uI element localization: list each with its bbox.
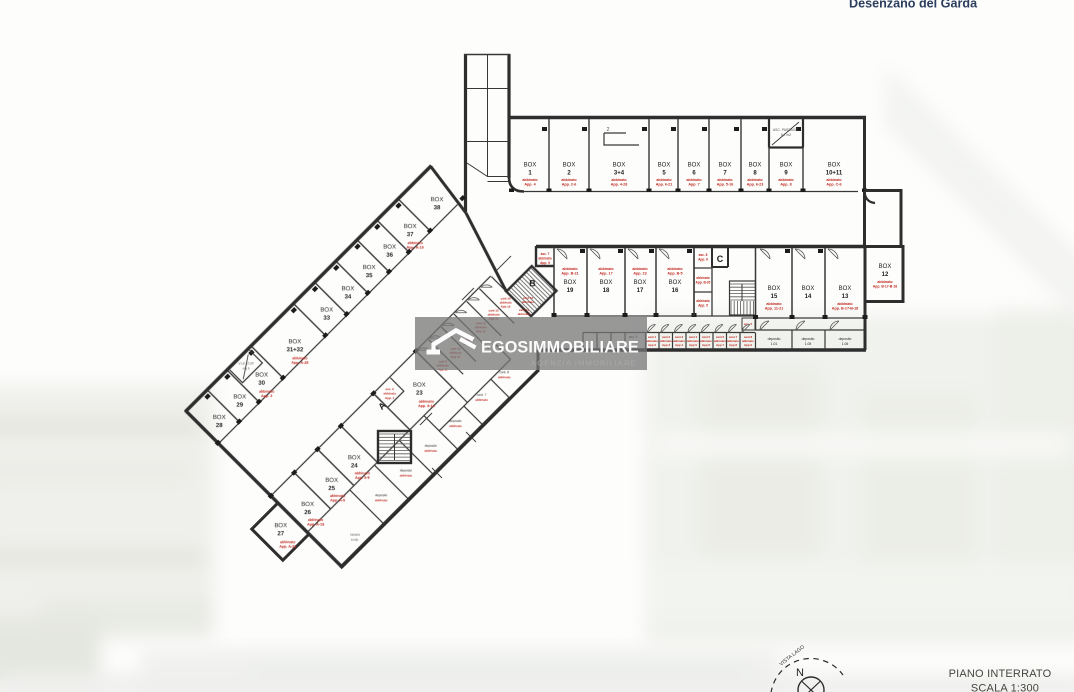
- svg-text:abbinato: abbinato: [419, 400, 435, 404]
- svg-text:App. A-19: App. A-19: [307, 522, 324, 526]
- svg-text:App 8: App 8: [729, 343, 737, 347]
- svg-text:abbinato: abbinato: [778, 178, 794, 182]
- svg-text:28: 28: [216, 423, 223, 429]
- svg-text:App. 23: App. 23: [633, 272, 646, 276]
- svg-text:asc. 6: asc. 6: [385, 387, 394, 391]
- svg-text:1.01: 1.01: [771, 342, 778, 346]
- svg-text:Desenzano del Garda: Desenzano del Garda: [849, 0, 978, 11]
- svg-text:BOX: BOX: [255, 373, 268, 379]
- svg-text:abbinato: abbinato: [561, 178, 577, 182]
- svg-text:1.05: 1.05: [805, 342, 812, 346]
- svg-text:abbinato: abbinato: [518, 312, 531, 316]
- svg-text:App. 8-14: App. 8-14: [418, 404, 436, 408]
- svg-text:abbinato: abbinato: [837, 302, 853, 306]
- svg-text:abbinato: abbinato: [747, 178, 763, 182]
- svg-text:16: 16: [672, 288, 679, 294]
- svg-text:BOX: BOX: [749, 163, 762, 169]
- svg-text:abbinato: abbinato: [522, 178, 538, 182]
- svg-text:asc. 8: asc. 8: [699, 253, 708, 257]
- svg-text:abbinato: abbinato: [292, 356, 308, 360]
- svg-text:App. A-5: App. A-5: [330, 498, 345, 502]
- svg-text:SCALA 1:300: SCALA 1:300: [971, 683, 1039, 692]
- svg-text:BOX: BOX: [839, 286, 852, 292]
- svg-text:23: 23: [416, 391, 423, 397]
- svg-text:V.LE 10,50: V.LE 10,50: [238, 361, 254, 365]
- svg-text:BOX: BOX: [289, 339, 302, 345]
- svg-text:abbinato: abbinato: [475, 398, 488, 402]
- svg-text:App. 5-16: App. 5-16: [717, 183, 734, 187]
- svg-text:15: 15: [771, 294, 778, 300]
- svg-text:EGOSIMMOBILIARE: EGOSIMMOBILIARE: [481, 339, 639, 357]
- svg-text:25: 25: [328, 486, 335, 492]
- svg-text:31+32: 31+32: [286, 347, 304, 353]
- svg-text:abbinato: abbinato: [656, 178, 672, 182]
- svg-text:14: 14: [805, 294, 812, 300]
- svg-text:App. 8-9: App. 8-9: [355, 476, 370, 480]
- svg-text:BOX: BOX: [669, 280, 682, 286]
- svg-text:mq 5: mq 5: [243, 366, 250, 370]
- svg-text:abbinato: abbinato: [383, 392, 396, 396]
- svg-text:App. A-15: App. A-15: [407, 246, 424, 250]
- svg-text:35: 35: [366, 273, 373, 279]
- svg-text:BOX: BOX: [348, 455, 361, 461]
- svg-text:deposito: deposito: [449, 419, 461, 423]
- svg-text:BOX: BOX: [879, 264, 892, 270]
- svg-text:B: B: [529, 278, 536, 288]
- svg-text:cant. 7: cant. 7: [477, 393, 487, 397]
- svg-text:abbinato: abbinato: [686, 178, 702, 182]
- svg-text:abbinato: abbinato: [667, 267, 683, 271]
- svg-text:1.06: 1.06: [842, 342, 849, 346]
- svg-text:BOX: BOX: [383, 245, 396, 251]
- svg-text:abbinato: abbinato: [766, 302, 782, 306]
- svg-text:BOX: BOX: [563, 163, 576, 169]
- svg-text:8: 8: [753, 171, 757, 177]
- svg-text:abbinato: abbinato: [632, 267, 648, 271]
- svg-text:2: 2: [567, 171, 571, 177]
- svg-text:abbinato: abbinato: [522, 300, 535, 304]
- svg-text:abbinato: abbinato: [330, 494, 346, 498]
- svg-text:A: A: [376, 400, 388, 412]
- svg-text:abbinato: abbinato: [611, 178, 627, 182]
- svg-text:34: 34: [345, 294, 352, 300]
- svg-text:App. A-22: App. A-22: [279, 545, 296, 549]
- svg-text:BOX: BOX: [404, 224, 417, 230]
- svg-text:App. 5: App. 5: [698, 304, 708, 308]
- svg-text:deposito: deposito: [839, 337, 852, 341]
- svg-text:7: 7: [723, 171, 727, 177]
- svg-text:cant. 8: cant. 8: [499, 370, 509, 374]
- svg-text:36: 36: [386, 253, 393, 259]
- svg-text:BOX: BOX: [564, 280, 577, 286]
- svg-text:App. B-20: App. B-20: [696, 281, 711, 285]
- svg-text:App. B-17-B-18: App. B-17-B-18: [832, 307, 858, 311]
- svg-text:BOX: BOX: [233, 395, 246, 401]
- svg-text:29: 29: [236, 403, 243, 409]
- svg-text:C: C: [717, 254, 724, 264]
- svg-text:deposito: deposito: [375, 493, 387, 497]
- svg-text:App 4: App 4: [675, 343, 683, 347]
- svg-text:AGENZIA IMMOBILIARE: AGENZIA IMMOBILIARE: [531, 359, 637, 368]
- svg-text:App. B-5: App. B-5: [667, 272, 682, 276]
- svg-text:App. 4: App. 4: [524, 183, 536, 187]
- svg-text:30: 30: [258, 381, 265, 387]
- svg-text:3+4: 3+4: [614, 171, 625, 177]
- svg-text:BOX: BOX: [342, 286, 355, 292]
- svg-text:abbinato: abbinato: [259, 390, 275, 394]
- svg-text:BOX: BOX: [802, 286, 815, 292]
- svg-text:App. A-28: App. A-28: [291, 361, 308, 365]
- svg-text:App. 1: App. 1: [385, 396, 394, 400]
- svg-text:VISTA LAGO: VISTA LAGO: [779, 644, 806, 667]
- svg-text:BOX: BOX: [524, 163, 537, 169]
- svg-text:BOX: BOX: [320, 308, 333, 314]
- svg-text:abbinato: abbinato: [280, 540, 296, 544]
- svg-text:abbinato: abbinato: [375, 498, 388, 502]
- svg-text:abbinato: abbinato: [355, 471, 371, 475]
- svg-text:asc. 7: asc. 7: [541, 252, 550, 256]
- svg-text:deposito: deposito: [425, 444, 437, 448]
- svg-text:App 6: App 6: [702, 343, 710, 347]
- svg-text:App 7: App 7: [716, 343, 724, 347]
- svg-text:deposito: deposito: [802, 337, 815, 341]
- svg-text:PIANO INTERRATO: PIANO INTERRATO: [949, 668, 1052, 680]
- svg-text:abbinato: abbinato: [826, 178, 842, 182]
- svg-text:BOX: BOX: [780, 163, 793, 169]
- svg-text:12: 12: [882, 272, 889, 278]
- svg-text:App. 6-23: App. 6-23: [747, 183, 764, 187]
- svg-text:BOX: BOX: [688, 163, 701, 169]
- svg-text:5,7 m2: 5,7 m2: [781, 133, 791, 137]
- svg-text:BOX: BOX: [768, 286, 781, 292]
- svg-text:26: 26: [304, 510, 311, 516]
- svg-text:App. 4-28: App. 4-28: [611, 183, 628, 187]
- svg-text:App. B-17-B-18: App. B-17-B-18: [873, 285, 897, 289]
- svg-text:27: 27: [277, 531, 284, 537]
- svg-text:BOX: BOX: [431, 197, 444, 203]
- svg-text:App. 17: App. 17: [599, 272, 612, 276]
- svg-text:17: 17: [637, 288, 644, 294]
- svg-text:App 3: App 3: [662, 343, 670, 347]
- svg-text:1: 1: [528, 171, 532, 177]
- svg-text:abbinato: abbinato: [498, 375, 511, 379]
- svg-text:24: 24: [351, 463, 358, 469]
- svg-text:abbinato: abbinato: [308, 518, 324, 522]
- svg-text:asc. 5: asc. 5: [744, 322, 753, 326]
- svg-text:BOX: BOX: [828, 163, 841, 169]
- svg-text:BOX: BOX: [325, 478, 338, 484]
- svg-text:rampa: rampa: [350, 533, 360, 537]
- svg-text:abbinato: abbinato: [696, 299, 709, 303]
- svg-text:2: 2: [607, 127, 610, 133]
- svg-text:App. 9: App. 9: [540, 261, 550, 265]
- svg-text:App. 8: App. 8: [780, 183, 791, 187]
- svg-text:abbinato: abbinato: [696, 276, 709, 280]
- svg-text:App. 3: App. 3: [261, 394, 272, 398]
- svg-text:18: 18: [603, 288, 610, 294]
- svg-text:App. 6-21: App. 6-21: [656, 183, 673, 187]
- svg-text:abbinato: abbinato: [449, 424, 462, 428]
- svg-text:BOX: BOX: [213, 415, 226, 421]
- svg-text:App. 7: App. 7: [688, 183, 699, 187]
- svg-text:BOX: BOX: [274, 523, 287, 529]
- svg-text:10+11: 10+11: [826, 171, 843, 177]
- svg-text:abbinato: abbinato: [400, 474, 413, 478]
- svg-text:6: 6: [692, 171, 696, 177]
- svg-text:BOX: BOX: [634, 280, 647, 286]
- svg-text:BOX: BOX: [301, 502, 314, 508]
- svg-text:abbinato: abbinato: [424, 449, 437, 453]
- svg-text:App 16: App 16: [501, 305, 511, 309]
- svg-text:abbinato: abbinato: [562, 267, 578, 271]
- svg-text:19: 19: [567, 288, 574, 294]
- svg-text:App. 2-6: App. 2-6: [562, 183, 577, 187]
- svg-text:App. B-21: App. B-21: [561, 272, 578, 276]
- svg-text:N: N: [796, 667, 804, 679]
- svg-text:App. 11-21: App. 11-21: [765, 307, 783, 311]
- svg-text:scop.: scop.: [351, 538, 359, 542]
- svg-text:BOX: BOX: [719, 163, 732, 169]
- svg-text:App 5: App 5: [689, 343, 697, 347]
- svg-text:abbinato: abbinato: [538, 257, 551, 261]
- svg-text:App 9: App 9: [744, 343, 752, 347]
- svg-text:BOX: BOX: [613, 163, 626, 169]
- svg-text:deposito: deposito: [400, 469, 412, 473]
- svg-text:abbinato: abbinato: [407, 241, 423, 245]
- svg-text:App. C-6: App. C-6: [826, 183, 841, 187]
- svg-text:abbinato: abbinato: [717, 178, 733, 182]
- svg-text:13: 13: [842, 294, 849, 300]
- svg-text:abbinato: abbinato: [877, 280, 893, 284]
- svg-text:BOX: BOX: [363, 265, 376, 271]
- svg-text:deposito: deposito: [768, 337, 781, 341]
- svg-text:App 2: App 2: [648, 343, 656, 347]
- svg-text:5: 5: [662, 171, 666, 177]
- svg-text:BOX: BOX: [658, 163, 671, 169]
- svg-text:BOX: BOX: [600, 280, 613, 286]
- svg-text:9: 9: [784, 171, 788, 177]
- svg-text:BOX: BOX: [413, 383, 426, 389]
- svg-text:ASC. PASSAGG.: ASC. PASSAGG.: [773, 128, 799, 132]
- svg-text:App. 6: App. 6: [698, 258, 708, 262]
- svg-text:33: 33: [323, 316, 330, 322]
- svg-text:abbinato: abbinato: [598, 267, 614, 271]
- svg-text:37: 37: [407, 232, 414, 238]
- svg-text:38: 38: [434, 205, 441, 211]
